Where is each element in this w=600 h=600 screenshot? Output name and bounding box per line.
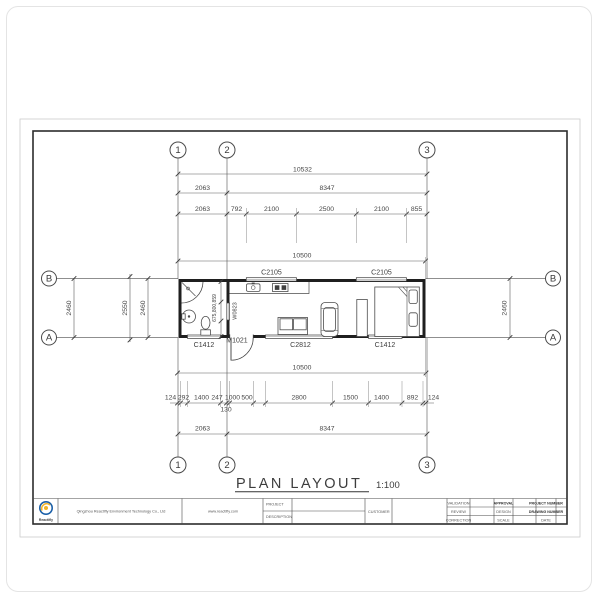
dim-bot-500: 500 (241, 395, 253, 402)
dim-bot-124a: 124 (165, 395, 177, 402)
field-scale: SCALE (497, 518, 510, 522)
dim-bot-1500: 1500 (343, 395, 358, 402)
dim-top-total: 10532 (293, 167, 312, 174)
grid-bubble-1-bottom: 1 (175, 460, 180, 471)
dim-bot-292: 292 (178, 395, 190, 402)
field-description: DESCRIPTION (266, 515, 292, 519)
grid-bubble-A-left: A (46, 333, 53, 344)
dim-bot-1400a: 1400 (194, 395, 209, 402)
dim-top-8347: 8347 (319, 185, 334, 192)
dim-top-2063: 2063 (195, 185, 210, 192)
company-logo: Reactifly (39, 502, 53, 522)
field-validation: VALIDATION (447, 502, 469, 506)
window-c2105-left (246, 278, 296, 281)
plan-title: PLAN LAYOUT (236, 476, 362, 492)
dim-seg-2500: 2500 (319, 206, 334, 213)
dimensions-top: 10532 2063 8347 2063 792 2100 2500 2100 … (176, 167, 430, 280)
dim-left-outer-2460: 2460 (66, 300, 73, 315)
dim-seg-2100a: 2100 (264, 206, 279, 213)
field-project: PROJECT (266, 503, 284, 507)
field-approval: APPROVAL (494, 502, 515, 506)
field-drawing-number: DRAWING NUMBER (529, 510, 564, 514)
toilet (201, 316, 211, 335)
dim-bot-247: 247 (211, 395, 223, 402)
bed (375, 287, 420, 337)
armchair (321, 303, 338, 337)
field-customer: CUSTOMER (368, 510, 390, 514)
dim-plan-width-top: 10500 (293, 253, 312, 260)
label-window-c2105-right: C2105 (371, 270, 392, 277)
grid-bubble-2-top: 2 (224, 145, 229, 156)
label-window-c2812: C2812 (290, 342, 311, 349)
floor-plan-drawing: 1 2 3 1 2 3 B A B A 10532 2063 8347 2063… (0, 0, 600, 600)
field-review: REVIEW (451, 510, 466, 514)
title-block: Reactifly Qingzhou Reactifly Environment… (33, 499, 567, 525)
kitchen-sink (247, 283, 261, 292)
window-c2105-right (356, 278, 406, 281)
dim-left-2550: 2550 (122, 300, 129, 315)
dim-seg-792: 792 (231, 206, 243, 213)
dim-right-2460: 2460 (502, 300, 509, 315)
grid-system: 1 2 3 1 2 3 B A B A (42, 142, 561, 473)
label-door-m1021: M1021 (226, 338, 248, 345)
label-window-c2105-left: C2105 (261, 270, 282, 277)
grid-bubble-A-right: A (550, 333, 557, 344)
field-date: DATE (541, 518, 551, 522)
dim-bot-892: 892 (407, 395, 419, 402)
dim-bath-chain: 675,800,859 (212, 294, 218, 322)
dim-bot-2800: 2800 (291, 395, 306, 402)
washbasin (182, 310, 196, 323)
field-correction: CORRECTION (446, 518, 472, 522)
grid-bubble-B-right: B (550, 274, 556, 285)
dim-bot-1400b: 1400 (374, 395, 389, 402)
kitchen (230, 282, 310, 294)
dim-plan-width-bottom: 10500 (293, 365, 312, 372)
shower (182, 282, 204, 303)
plan-scale: 1:100 (376, 480, 400, 491)
logo-text: Reactifly (39, 518, 53, 522)
dim-bot-1000: 1000 (225, 395, 240, 402)
grid-bubble-B-left: B (46, 274, 52, 285)
dim-bot-2063: 2063 (195, 426, 210, 433)
dim-seg-855: 855 (411, 206, 423, 213)
dim-bot-130: 130 (220, 407, 232, 414)
drawing-title: PLAN LAYOUT 1:100 (235, 476, 400, 492)
dim-seg-2063: 2063 (195, 206, 210, 213)
drawing-sheet-page: 1 2 3 1 2 3 B A B A 10532 2063 8347 2063… (0, 0, 600, 600)
field-project-number: PROJECT NUMBER (529, 502, 563, 506)
company-name: Qingzhou Reactifly Environment Technolog… (77, 510, 166, 514)
loveseat (278, 318, 308, 335)
dimensions-bottom: 10500 124 292 1400 247 1000 500 2800 150… (165, 338, 440, 436)
furniture (278, 287, 419, 337)
stove (273, 284, 289, 292)
bathroom-fixtures: 675,800,859 (182, 279, 224, 339)
field-design: DESIGN (496, 510, 511, 514)
company-website: www.reactifly.com (208, 510, 238, 514)
wardrobe (357, 300, 368, 337)
grid-bubble-3-top: 3 (424, 145, 429, 156)
dim-seg-2100b: 2100 (374, 206, 389, 213)
grid-bubble-1-top: 1 (175, 145, 180, 156)
grid-bubble-2-bottom: 2 (224, 460, 229, 471)
dim-bot-124b: 124 (428, 395, 440, 402)
label-window-c1412-bath: C1412 (194, 342, 215, 349)
label-window-w0823: W0823 (233, 302, 239, 319)
dim-bot-8347: 8347 (319, 426, 334, 433)
grid-bubble-3-bottom: 3 (424, 460, 429, 471)
dim-left-inner-2460: 2460 (140, 300, 147, 315)
interior-window-w0823 (227, 303, 230, 320)
label-window-c1412-bedroom: C1412 (375, 342, 396, 349)
